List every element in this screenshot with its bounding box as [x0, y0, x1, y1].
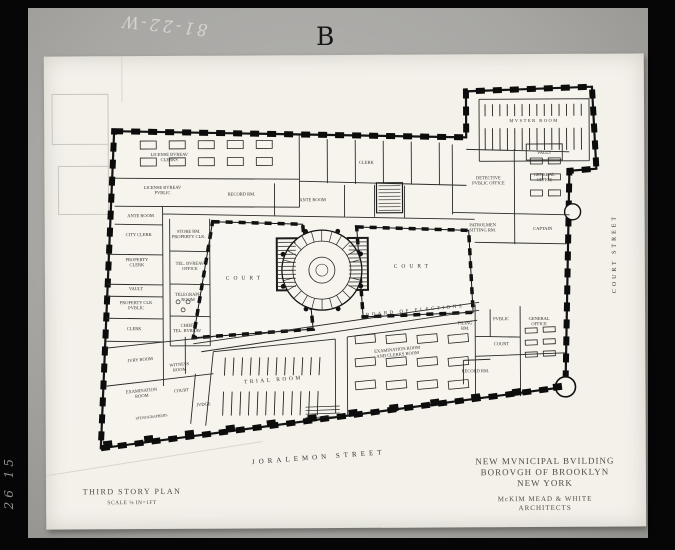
architect-line: ARCHITECTS [519, 504, 572, 512]
room-label: VAULT [129, 286, 144, 291]
room-label: CLERK [359, 160, 375, 165]
room-label: MVSTER ROOM [509, 118, 558, 123]
room-label: GENERALOFFICE [534, 172, 555, 182]
room-label: ANTE ROOM [299, 197, 326, 202]
room-label: RECORD RM. [228, 191, 256, 196]
title-line: NEW MVNICIPAL BVILDING [475, 456, 614, 467]
room-label: PVBLIC [493, 316, 509, 321]
room-label: PATROLMENSITTING RM. [469, 222, 496, 232]
court-label: COURT [226, 275, 264, 281]
room-label: CLERK [127, 326, 143, 331]
room-label: CAPTAIN [533, 226, 553, 231]
room-label: COURT [494, 341, 509, 346]
plan-title: THIRD STORY PLAN [83, 487, 182, 497]
photograph: 81-22-W B [28, 8, 648, 538]
room-label: RECORD RM. [462, 368, 490, 373]
room-label: GENERALOFFICE [529, 316, 550, 326]
handwritten-negative-number: 81-22-W [37, 3, 208, 41]
room-label: ANTE ROOM [127, 213, 154, 218]
drawing-sheet: LICENSE BVREAVCLERKSLICENSE BVREAVPVBLIC… [44, 53, 646, 529]
photograph-frame: 26 15 81-22-W B [0, 0, 675, 550]
plate-letter: B [316, 22, 334, 51]
street-label: JORALEMON STREET [252, 448, 386, 466]
title-line: BOROVGH OF BROOKLYN [481, 467, 610, 478]
architect-line: McKIM MEAD & WHITE [498, 495, 593, 503]
room-label: DETECTIVEPVBLIC OFFICE [472, 175, 505, 185]
handwritten-margin-number: 26 15 [2, 455, 16, 509]
room-label: VAULT [537, 150, 552, 155]
room-label: CITY CLERK [126, 232, 153, 237]
street-label: COURT STREET [612, 214, 618, 293]
title-line: NEW YORK [517, 478, 573, 488]
court-label: COURT [394, 264, 432, 270]
plan-scale: SCALE ⅛ IN=1FT [107, 500, 157, 506]
floor-plan: LICENSE BVREAVCLERKSLICENSE BVREAVPVBLIC… [44, 53, 646, 529]
